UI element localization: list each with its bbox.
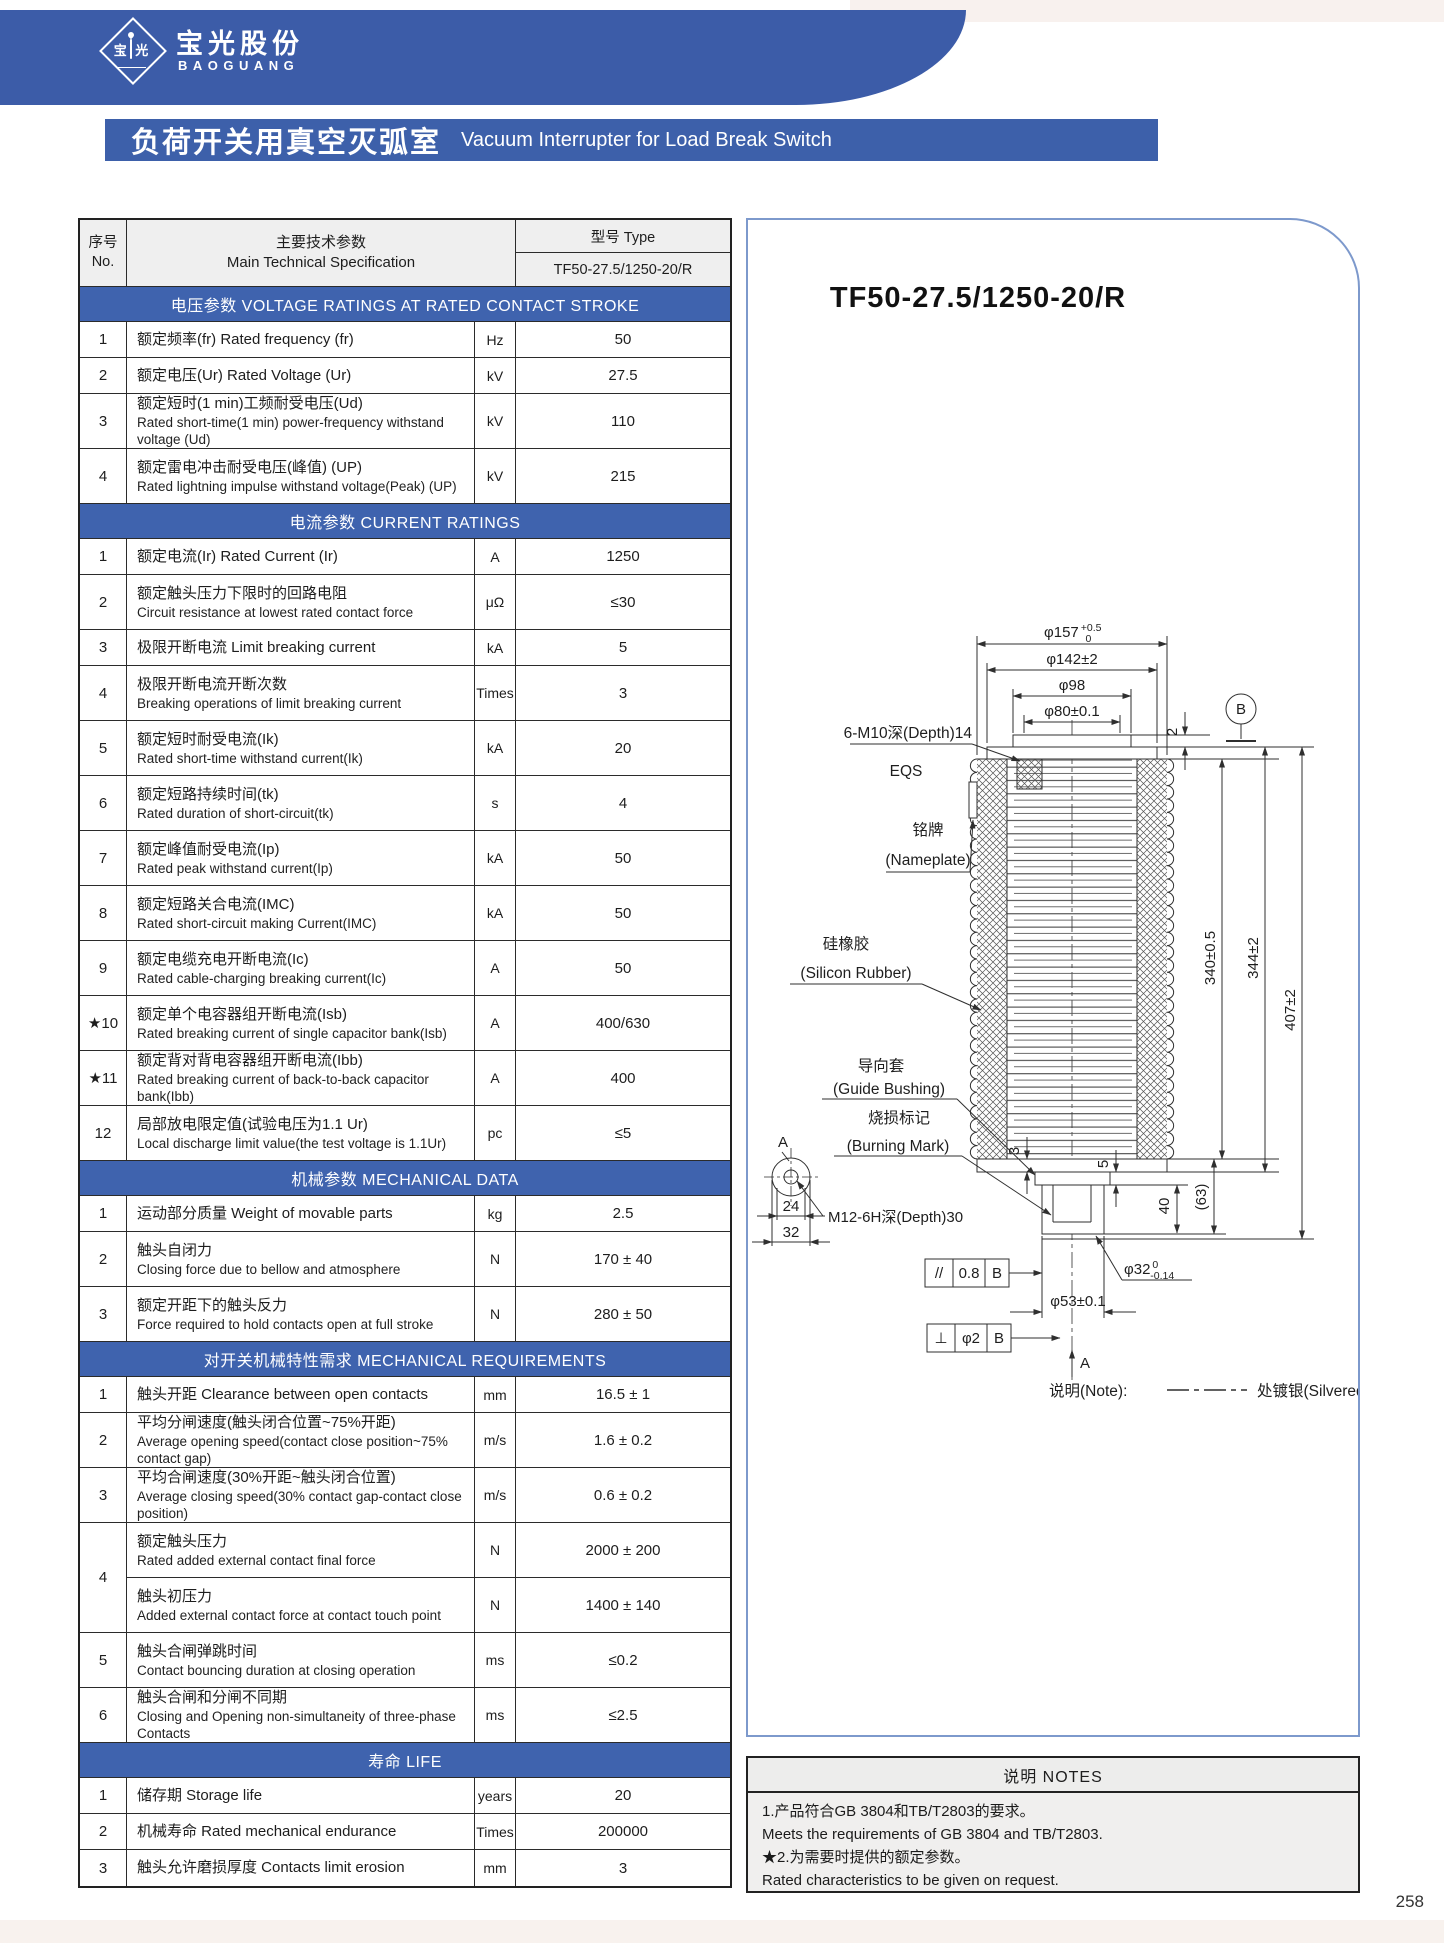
row-value: 2.5 <box>516 1196 730 1231</box>
description-zh: 额定电压(Ur) Rated Voltage (Ur) <box>137 366 470 386</box>
section-header: 电流参数 CURRENT RATINGS <box>80 504 730 539</box>
description-zh: 额定触头压力 <box>137 1532 470 1552</box>
table-row: 3额定短时(1 min)工频耐受电压(Ud)Rated short-time(1… <box>80 394 730 449</box>
row-unit: Times <box>475 1814 516 1849</box>
section-header: 对开关机械特性需求 MECHANICAL REQUIREMENTS <box>80 1342 730 1377</box>
row-unit: kV <box>475 394 516 448</box>
table-sub-row: 触头初压力Added external contact force at con… <box>127 1577 730 1632</box>
row-value: 400 <box>516 1051 730 1105</box>
page-title: 负荷开关用真空灭弧室 Vacuum Interrupter for Load B… <box>105 119 1158 161</box>
description-zh: 额定短时耐受电流(Ik) <box>137 730 470 750</box>
table-row: 3触头允许磨损厚度 Contacts limit erosionmm3 <box>80 1850 730 1886</box>
table-sub-row: 额定触头压力Rated added external contact final… <box>127 1523 730 1577</box>
row-description: 局部放电限定值(试验电压为1.1 Ur)Local discharge limi… <box>127 1106 475 1160</box>
row-number: 2 <box>80 1814 127 1849</box>
row-description: 触头初压力Added external contact force at con… <box>127 1578 475 1632</box>
row-description: 额定短路持续时间(tk)Rated duration of short-circ… <box>127 776 475 830</box>
row-number: 1 <box>80 322 127 357</box>
eqs-label: EQS <box>890 763 923 780</box>
row-description: 平均分闸速度(触头闭合位置~75%开距)Average opening spee… <box>127 1413 475 1467</box>
description-zh: 额定短路关合电流(IMC) <box>137 895 470 915</box>
table-header: 序号 No. 主要技术参数 Main Technical Specificati… <box>80 220 730 287</box>
row-description: 额定背对背电容器组开断电流(Ibb)Rated breaking current… <box>127 1051 475 1105</box>
row-value: 1400 ± 140 <box>516 1578 730 1632</box>
row-description: 额定触头压力Rated added external contact final… <box>127 1523 475 1577</box>
row-number: 3 <box>80 630 127 665</box>
row-description: 额定峰值耐受电流(Ip)Rated peak withstand current… <box>127 831 475 885</box>
description-zh: 额定电流(Ir) Rated Current (Ir) <box>137 547 470 567</box>
table-row: 1额定电流(Ir) Rated Current (Ir)A1250 <box>80 539 730 575</box>
notes-box: 说明 NOTES 1.产品符合GB 3804和TB/T2803的要求。Meets… <box>746 1756 1360 1893</box>
row-value: 16.5 ± 1 <box>516 1377 730 1412</box>
row-description: 额定雷电冲击耐受电压(峰值) (UP)Rated lightning impul… <box>127 449 475 503</box>
row-unit: kA <box>475 831 516 885</box>
table-row: 4极限开断电流开断次数Breaking operations of limit … <box>80 666 730 721</box>
row-value: 200000 <box>516 1814 730 1849</box>
row-description: 额定短时耐受电流(Ik)Rated short-time withstand c… <box>127 721 475 775</box>
spec-table: 序号 No. 主要技术参数 Main Technical Specificati… <box>78 218 732 1888</box>
dim-2: 2 <box>1164 728 1181 736</box>
row-description: 额定开距下的触头反力Force required to hold contact… <box>127 1287 475 1341</box>
description-zh: 额定触头压力下限时的回路电阻 <box>137 584 470 604</box>
datum-b-label: B <box>1236 701 1246 718</box>
description-en: Rated breaking current of single capacit… <box>137 1025 470 1042</box>
table-row: 3极限开断电流 Limit breaking currentkA5 <box>80 630 730 666</box>
dim-5: 5 <box>1095 1160 1112 1168</box>
description-zh: 触头合闸和分闸不同期 <box>137 1688 470 1708</box>
dim-phi98: φ98 <box>1059 677 1085 694</box>
description-zh: 触头开距 Clearance between open contacts <box>137 1385 470 1405</box>
table-row: 2额定电压(Ur) Rated Voltage (Ur)kV27.5 <box>80 358 730 394</box>
row-value: 0.6 ± 0.2 <box>516 1468 730 1522</box>
row-description: 触头自闭力Closing force due to bellow and atm… <box>127 1232 475 1286</box>
row-value: 20 <box>516 721 730 775</box>
section-header: 寿命 LIFE <box>80 1743 730 1778</box>
row-description: 机械寿命 Rated mechanical endurance <box>127 1814 475 1849</box>
row-number: 1 <box>80 1778 127 1813</box>
description-zh: 触头允许磨损厚度 Contacts limit erosion <box>137 1858 470 1878</box>
row-description: 平均合闸速度(30%开距~触头闭合位置)Average closing spee… <box>127 1468 475 1522</box>
dim-phi142: φ142±2 <box>1046 651 1097 668</box>
table-row: 2平均分闸速度(触头闭合位置~75%开距)Average opening spe… <box>80 1413 730 1468</box>
header-type-value: TF50-27.5/1250-20/R <box>516 253 730 286</box>
row-value: ≤2.5 <box>516 1688 730 1742</box>
row-number: 6 <box>80 776 127 830</box>
description-en: Rated duration of short-circuit(tk) <box>137 805 470 822</box>
dim-407: 407±2 <box>1282 989 1299 1031</box>
logo-characters: 宝 光 <box>100 18 162 80</box>
page-title-en: Vacuum Interrupter for Load Break Switch <box>461 129 832 152</box>
bolt-spec-label: 6-M10深(Depth)14 <box>844 724 973 742</box>
brand-name-zh: 宝光股份 <box>176 22 304 61</box>
description-en: Contact bouncing duration at closing ope… <box>137 1662 470 1679</box>
row-unit: mm <box>475 1850 516 1886</box>
header-no-zh: 序号 <box>89 234 118 253</box>
description-en: Closing and Opening non-simultaneity of … <box>137 1708 470 1742</box>
header-no-en: No. <box>92 253 115 272</box>
rubber-label-en: (Silicon Rubber) <box>800 965 911 982</box>
row-description: 额定短路关合电流(IMC)Rated short-circuit making … <box>127 886 475 940</box>
row-description: 触头允许磨损厚度 Contacts limit erosion <box>127 1850 475 1886</box>
row-unit: m/s <box>475 1468 516 1522</box>
row-unit: A <box>475 996 516 1050</box>
description-en: Rated lightning impulse withstand voltag… <box>137 478 470 495</box>
description-en: Breaking operations of limit breaking cu… <box>137 695 470 712</box>
row-description: 额定电流(Ir) Rated Current (Ir) <box>127 539 475 574</box>
description-en: Closing force due to bellow and atmosphe… <box>137 1261 470 1278</box>
row-number: 3 <box>80 1468 127 1522</box>
page-number: 258 <box>1376 1892 1424 1912</box>
row-unit: kA <box>475 721 516 775</box>
row-unit: N <box>475 1523 516 1577</box>
row-unit: s <box>475 776 516 830</box>
dim-24: 24 <box>783 1198 800 1215</box>
row-number: 2 <box>80 358 127 393</box>
row-value: 20 <box>516 1778 730 1813</box>
page-title-zh: 负荷开关用真空灭弧室 <box>131 119 441 161</box>
description-zh: 局部放电限定值(试验电压为1.1 Ur) <box>137 1115 470 1135</box>
table-row: 7额定峰值耐受电流(Ip)Rated peak withstand curren… <box>80 831 730 886</box>
fcf-perp-datum: B <box>994 1330 1004 1347</box>
row-unit: A <box>475 539 516 574</box>
arrow-a-label: A <box>1080 1355 1090 1372</box>
page: 宝 光 宝光股份 BAOGUANG 负荷开关用真空灭弧室 Vacuum Inte… <box>0 0 1444 1943</box>
dim-phi32: φ320-0.14 <box>1124 1259 1174 1282</box>
row-unit: N <box>475 1232 516 1286</box>
row-value: 50 <box>516 941 730 995</box>
notes-title: 说明 NOTES <box>748 1758 1358 1793</box>
table-row: 9额定电缆充电开断电流(Ic)Rated cable-charging brea… <box>80 941 730 996</box>
table-row: 3额定开距下的触头反力Force required to hold contac… <box>80 1287 730 1342</box>
spec-table-body: 电压参数 VOLTAGE RATINGS AT RATED CONTACT ST… <box>80 287 730 1886</box>
table-row: 1额定频率(fr) Rated frequency (fr)Hz50 <box>80 322 730 358</box>
row-value: 5 <box>516 630 730 665</box>
dim-phi157: φ157+0.50 <box>1044 622 1102 645</box>
row-number: 3 <box>80 394 127 448</box>
row-number: 5 <box>80 1633 127 1687</box>
row-description: 触头开距 Clearance between open contacts <box>127 1377 475 1412</box>
row-number: 6 <box>80 1688 127 1742</box>
description-zh: 额定开距下的触头反力 <box>137 1296 470 1316</box>
note-line: ★2.为需要时提供的额定参数。 <box>762 1846 1358 1869</box>
row-description: 额定电缆充电开断电流(Ic)Rated cable-charging break… <box>127 941 475 995</box>
row-description: 额定触头压力下限时的回路电阻Circuit resistance at lowe… <box>127 575 475 629</box>
row-unit: mm <box>475 1377 516 1412</box>
header-spec-zh: 主要技术参数 <box>276 233 366 253</box>
silvered-note-text: 处镀银(Silvered) <box>1257 1382 1358 1400</box>
bushing-label-en: (Guide Bushing) <box>833 1081 945 1098</box>
description-zh: 机械寿命 Rated mechanical endurance <box>137 1822 470 1842</box>
description-zh: 极限开断电流开断次数 <box>137 675 470 695</box>
logo-char-left: 宝 <box>114 40 127 59</box>
section-a-label: A <box>778 1134 788 1151</box>
table-row: 5额定短时耐受电流(Ik)Rated short-time withstand … <box>80 721 730 776</box>
row-value: 400/630 <box>516 996 730 1050</box>
row-unit: kA <box>475 886 516 940</box>
row-value: 215 <box>516 449 730 503</box>
description-zh: 平均合闸速度(30%开距~触头闭合位置) <box>137 1468 470 1488</box>
dim-340: 340±0.5 <box>1202 931 1219 985</box>
rubber-label-zh: 硅橡胶 <box>823 935 870 953</box>
row-value: ≤0.2 <box>516 1633 730 1687</box>
row-value: 3 <box>516 1850 730 1886</box>
row-description: 额定单个电容器组开断电流(Isb)Rated breaking current … <box>127 996 475 1050</box>
table-row: 3平均合闸速度(30%开距~触头闭合位置)Average closing spe… <box>80 1468 730 1523</box>
row-number: 1 <box>80 1377 127 1412</box>
table-row: 2机械寿命 Rated mechanical enduranceTimes200… <box>80 1814 730 1850</box>
description-zh: 额定背对背电容器组开断电流(Ibb) <box>137 1051 470 1071</box>
description-en: Rated peak withstand current(Ip) <box>137 860 470 877</box>
dim-phi80: φ80±0.1 <box>1044 703 1100 720</box>
description-zh: 触头初压力 <box>137 1587 470 1607</box>
description-en: Circuit resistance at lowest rated conta… <box>137 604 470 621</box>
row-description: 额定频率(fr) Rated frequency (fr) <box>127 322 475 357</box>
description-zh: 触头合闸弹跳时间 <box>137 1642 470 1662</box>
header-spec-en: Main Technical Specification <box>227 253 415 273</box>
row-description: 额定电压(Ur) Rated Voltage (Ur) <box>127 358 475 393</box>
dim-63: (63) <box>1193 1184 1210 1211</box>
header-no: 序号 No. <box>80 220 127 286</box>
row-description: 额定短时(1 min)工频耐受电压(Ud)Rated short-time(1 … <box>127 394 475 448</box>
table-row: 6触头合闸和分闸不同期Closing and Opening non-simul… <box>80 1688 730 1743</box>
row-value: 2000 ± 200 <box>516 1523 730 1577</box>
row-value: 170 ± 40 <box>516 1232 730 1286</box>
row-number: 4 <box>80 449 127 503</box>
burning-mark-label-zh: 烧损标记 <box>868 1109 930 1127</box>
bushing-label-zh: 导向套 <box>858 1057 905 1075</box>
row-description: 储存期 Storage life <box>127 1778 475 1813</box>
row-unit: Hz <box>475 322 516 357</box>
burning-mark-label-en: (Burning Mark) <box>847 1138 950 1155</box>
row-value: ≤30 <box>516 575 730 629</box>
row-unit: μΩ <box>475 575 516 629</box>
description-en: Rated short-circuit making Current(IMC) <box>137 915 470 932</box>
brand-name-en: BAOGUANG <box>178 58 299 73</box>
description-en: Rated short-time(1 min) power-frequency … <box>137 414 470 448</box>
note-line: 1.产品符合GB 3804和TB/T2803的要求。 <box>762 1800 1358 1823</box>
row-unit: kV <box>475 449 516 503</box>
note-line: Meets the requirements of GB 3804 and TB… <box>762 1823 1358 1846</box>
table-row: 8额定短路关合电流(IMC)Rated short-circuit making… <box>80 886 730 941</box>
row-description: 极限开断电流开断次数Breaking operations of limit b… <box>127 666 475 720</box>
row-number: ★10 <box>80 996 127 1050</box>
silvered-note-label: 说明(Note): <box>1049 1382 1127 1400</box>
row-description: 极限开断电流 Limit breaking current <box>127 630 475 665</box>
nameplate-label-en: (Nameplate) <box>885 852 970 869</box>
row-number: 2 <box>80 1413 127 1467</box>
row-description: 运动部分质量 Weight of movable parts <box>127 1196 475 1231</box>
dim-344: 344±2 <box>1245 937 1262 979</box>
row-value: 27.5 <box>516 358 730 393</box>
row-number: 5 <box>80 721 127 775</box>
description-zh: 触头自闭力 <box>137 1241 470 1261</box>
row-number: 7 <box>80 831 127 885</box>
row-number: 3 <box>80 1850 127 1886</box>
description-zh: 额定频率(fr) Rated frequency (fr) <box>137 330 470 350</box>
dim-3: 3 <box>1006 1147 1023 1155</box>
row-number: 9 <box>80 941 127 995</box>
row-value: ≤5 <box>516 1106 730 1160</box>
logo-underline <box>116 67 146 69</box>
description-zh: 运动部分质量 Weight of movable parts <box>137 1204 470 1224</box>
description-en: Rated breaking current of back-to-back c… <box>137 1071 470 1105</box>
row-value: 1.6 ± 0.2 <box>516 1413 730 1467</box>
section-header: 电压参数 VOLTAGE RATINGS AT RATED CONTACT ST… <box>80 287 730 322</box>
row-unit: N <box>475 1287 516 1341</box>
fcf-parallel-sym: // <box>935 1265 944 1282</box>
table-row: 4额定触头压力Rated added external contact fina… <box>80 1523 730 1633</box>
row-unit: A <box>475 1051 516 1105</box>
row-value: 50 <box>516 831 730 885</box>
sub-rows: 额定触头压力Rated added external contact final… <box>127 1523 730 1632</box>
footer-strip <box>0 1920 1444 1943</box>
nameplate-label-zh: 铭牌 <box>912 821 943 839</box>
dim-32: 32 <box>783 1224 800 1241</box>
header-type: 型号 Type TF50-27.5/1250-20/R <box>516 220 730 286</box>
notes-body: 1.产品符合GB 3804和TB/T2803的要求。Meets the requ… <box>748 1793 1358 1892</box>
fcf-perp-sym: ⊥ <box>934 1330 947 1347</box>
header-type-label: 型号 Type <box>516 220 730 253</box>
row-number: 4 <box>80 1523 127 1632</box>
table-row: 2额定触头压力下限时的回路电阻Circuit resistance at low… <box>80 575 730 630</box>
row-unit: Times <box>475 666 516 720</box>
header-spec: 主要技术参数 Main Technical Specification <box>127 220 516 286</box>
description-zh: 额定短时(1 min)工频耐受电压(Ud) <box>137 394 470 414</box>
description-en: Added external contact force at contact … <box>137 1607 470 1624</box>
table-row: 4额定雷电冲击耐受电压(峰值) (UP)Rated lightning impu… <box>80 449 730 504</box>
drawing-panel: TF50-27.5/1250-20/R <box>746 218 1360 1737</box>
table-row: 6额定短路持续时间(tk)Rated duration of short-cir… <box>80 776 730 831</box>
table-row: 5触头合闸弹跳时间Contact bouncing duration at cl… <box>80 1633 730 1688</box>
description-zh: 极限开断电流 Limit breaking current <box>137 638 470 658</box>
row-unit: kV <box>475 358 516 393</box>
row-number: 3 <box>80 1287 127 1341</box>
description-zh: 储存期 Storage life <box>137 1786 470 1806</box>
table-row: 1触头开距 Clearance between open contactsmm1… <box>80 1377 730 1413</box>
description-en: Force required to hold contacts open at … <box>137 1316 470 1333</box>
row-unit: ms <box>475 1688 516 1742</box>
section-header: 机械参数 MECHANICAL DATA <box>80 1161 730 1196</box>
row-unit: A <box>475 941 516 995</box>
row-number: ★11 <box>80 1051 127 1105</box>
row-unit: N <box>475 1578 516 1632</box>
row-description: 触头合闸和分闸不同期Closing and Opening non-simult… <box>127 1688 475 1742</box>
row-unit: kg <box>475 1196 516 1231</box>
description-en: Average opening speed(contact close posi… <box>137 1433 470 1467</box>
row-value: 1250 <box>516 539 730 574</box>
fcf-parallel-datum: B <box>992 1265 1002 1282</box>
description-zh: 额定电缆充电开断电流(Ic) <box>137 950 470 970</box>
dim-40: 40 <box>1156 1198 1173 1215</box>
row-unit: ms <box>475 1633 516 1687</box>
description-zh: 额定短路持续时间(tk) <box>137 785 470 805</box>
dim-m12: M12-6H深(Depth)30 <box>828 1209 963 1226</box>
row-number: 1 <box>80 539 127 574</box>
row-number: 2 <box>80 575 127 629</box>
row-value: 50 <box>516 322 730 357</box>
row-number: 12 <box>80 1106 127 1160</box>
table-row: ★11额定背对背电容器组开断电流(Ibb)Rated breaking curr… <box>80 1051 730 1106</box>
row-unit: pc <box>475 1106 516 1160</box>
torch-icon <box>130 39 133 59</box>
technical-drawing: φ157+0.50 φ142±2 φ98 φ80±0.1 2 B 340±0.5… <box>748 220 1358 1735</box>
table-row: 1储存期 Storage lifeyears20 <box>80 1778 730 1814</box>
fcf-parallel-tol: 0.8 <box>959 1265 980 1282</box>
description-en: Average closing speed(30% contact gap-co… <box>137 1488 470 1522</box>
table-row: ★10额定单个电容器组开断电流(Isb)Rated breaking curre… <box>80 996 730 1051</box>
row-value: 3 <box>516 666 730 720</box>
table-row: 2触头自闭力Closing force due to bellow and at… <box>80 1232 730 1287</box>
description-zh: 额定雷电冲击耐受电压(峰值) (UP) <box>137 458 470 478</box>
description-en: Rated cable-charging breaking current(Ic… <box>137 970 470 987</box>
description-zh: 额定单个电容器组开断电流(Isb) <box>137 1005 470 1025</box>
baoguang-logo-icon: 宝 光 <box>100 18 162 80</box>
description-zh: 额定峰值耐受电流(Ip) <box>137 840 470 860</box>
row-value: 280 ± 50 <box>516 1287 730 1341</box>
row-number: 2 <box>80 1232 127 1286</box>
table-row: 12局部放电限定值(试验电压为1.1 Ur)Local discharge li… <box>80 1106 730 1161</box>
dim-phi53: φ53±0.1 <box>1050 1293 1106 1310</box>
row-number: 4 <box>80 666 127 720</box>
note-line: Rated characteristics to be given on req… <box>762 1869 1358 1892</box>
row-value: 110 <box>516 394 730 448</box>
description-en: Rated added external contact final force <box>137 1552 470 1569</box>
description-zh: 平均分闸速度(触头闭合位置~75%开距) <box>137 1413 470 1433</box>
row-unit: m/s <box>475 1413 516 1467</box>
row-value: 50 <box>516 886 730 940</box>
row-number: 8 <box>80 886 127 940</box>
table-row: 1运动部分质量 Weight of movable partskg2.5 <box>80 1196 730 1232</box>
description-en: Local discharge limit value(the test vol… <box>137 1135 470 1152</box>
row-unit: kA <box>475 630 516 665</box>
fcf-perp-tol: φ2 <box>962 1330 980 1347</box>
row-description: 触头合闸弹跳时间Contact bouncing duration at clo… <box>127 1633 475 1687</box>
row-value: 4 <box>516 776 730 830</box>
logo-char-right: 光 <box>135 40 148 59</box>
row-number: 1 <box>80 1196 127 1231</box>
row-unit: years <box>475 1778 516 1813</box>
description-en: Rated short-time withstand current(Ik) <box>137 750 470 767</box>
